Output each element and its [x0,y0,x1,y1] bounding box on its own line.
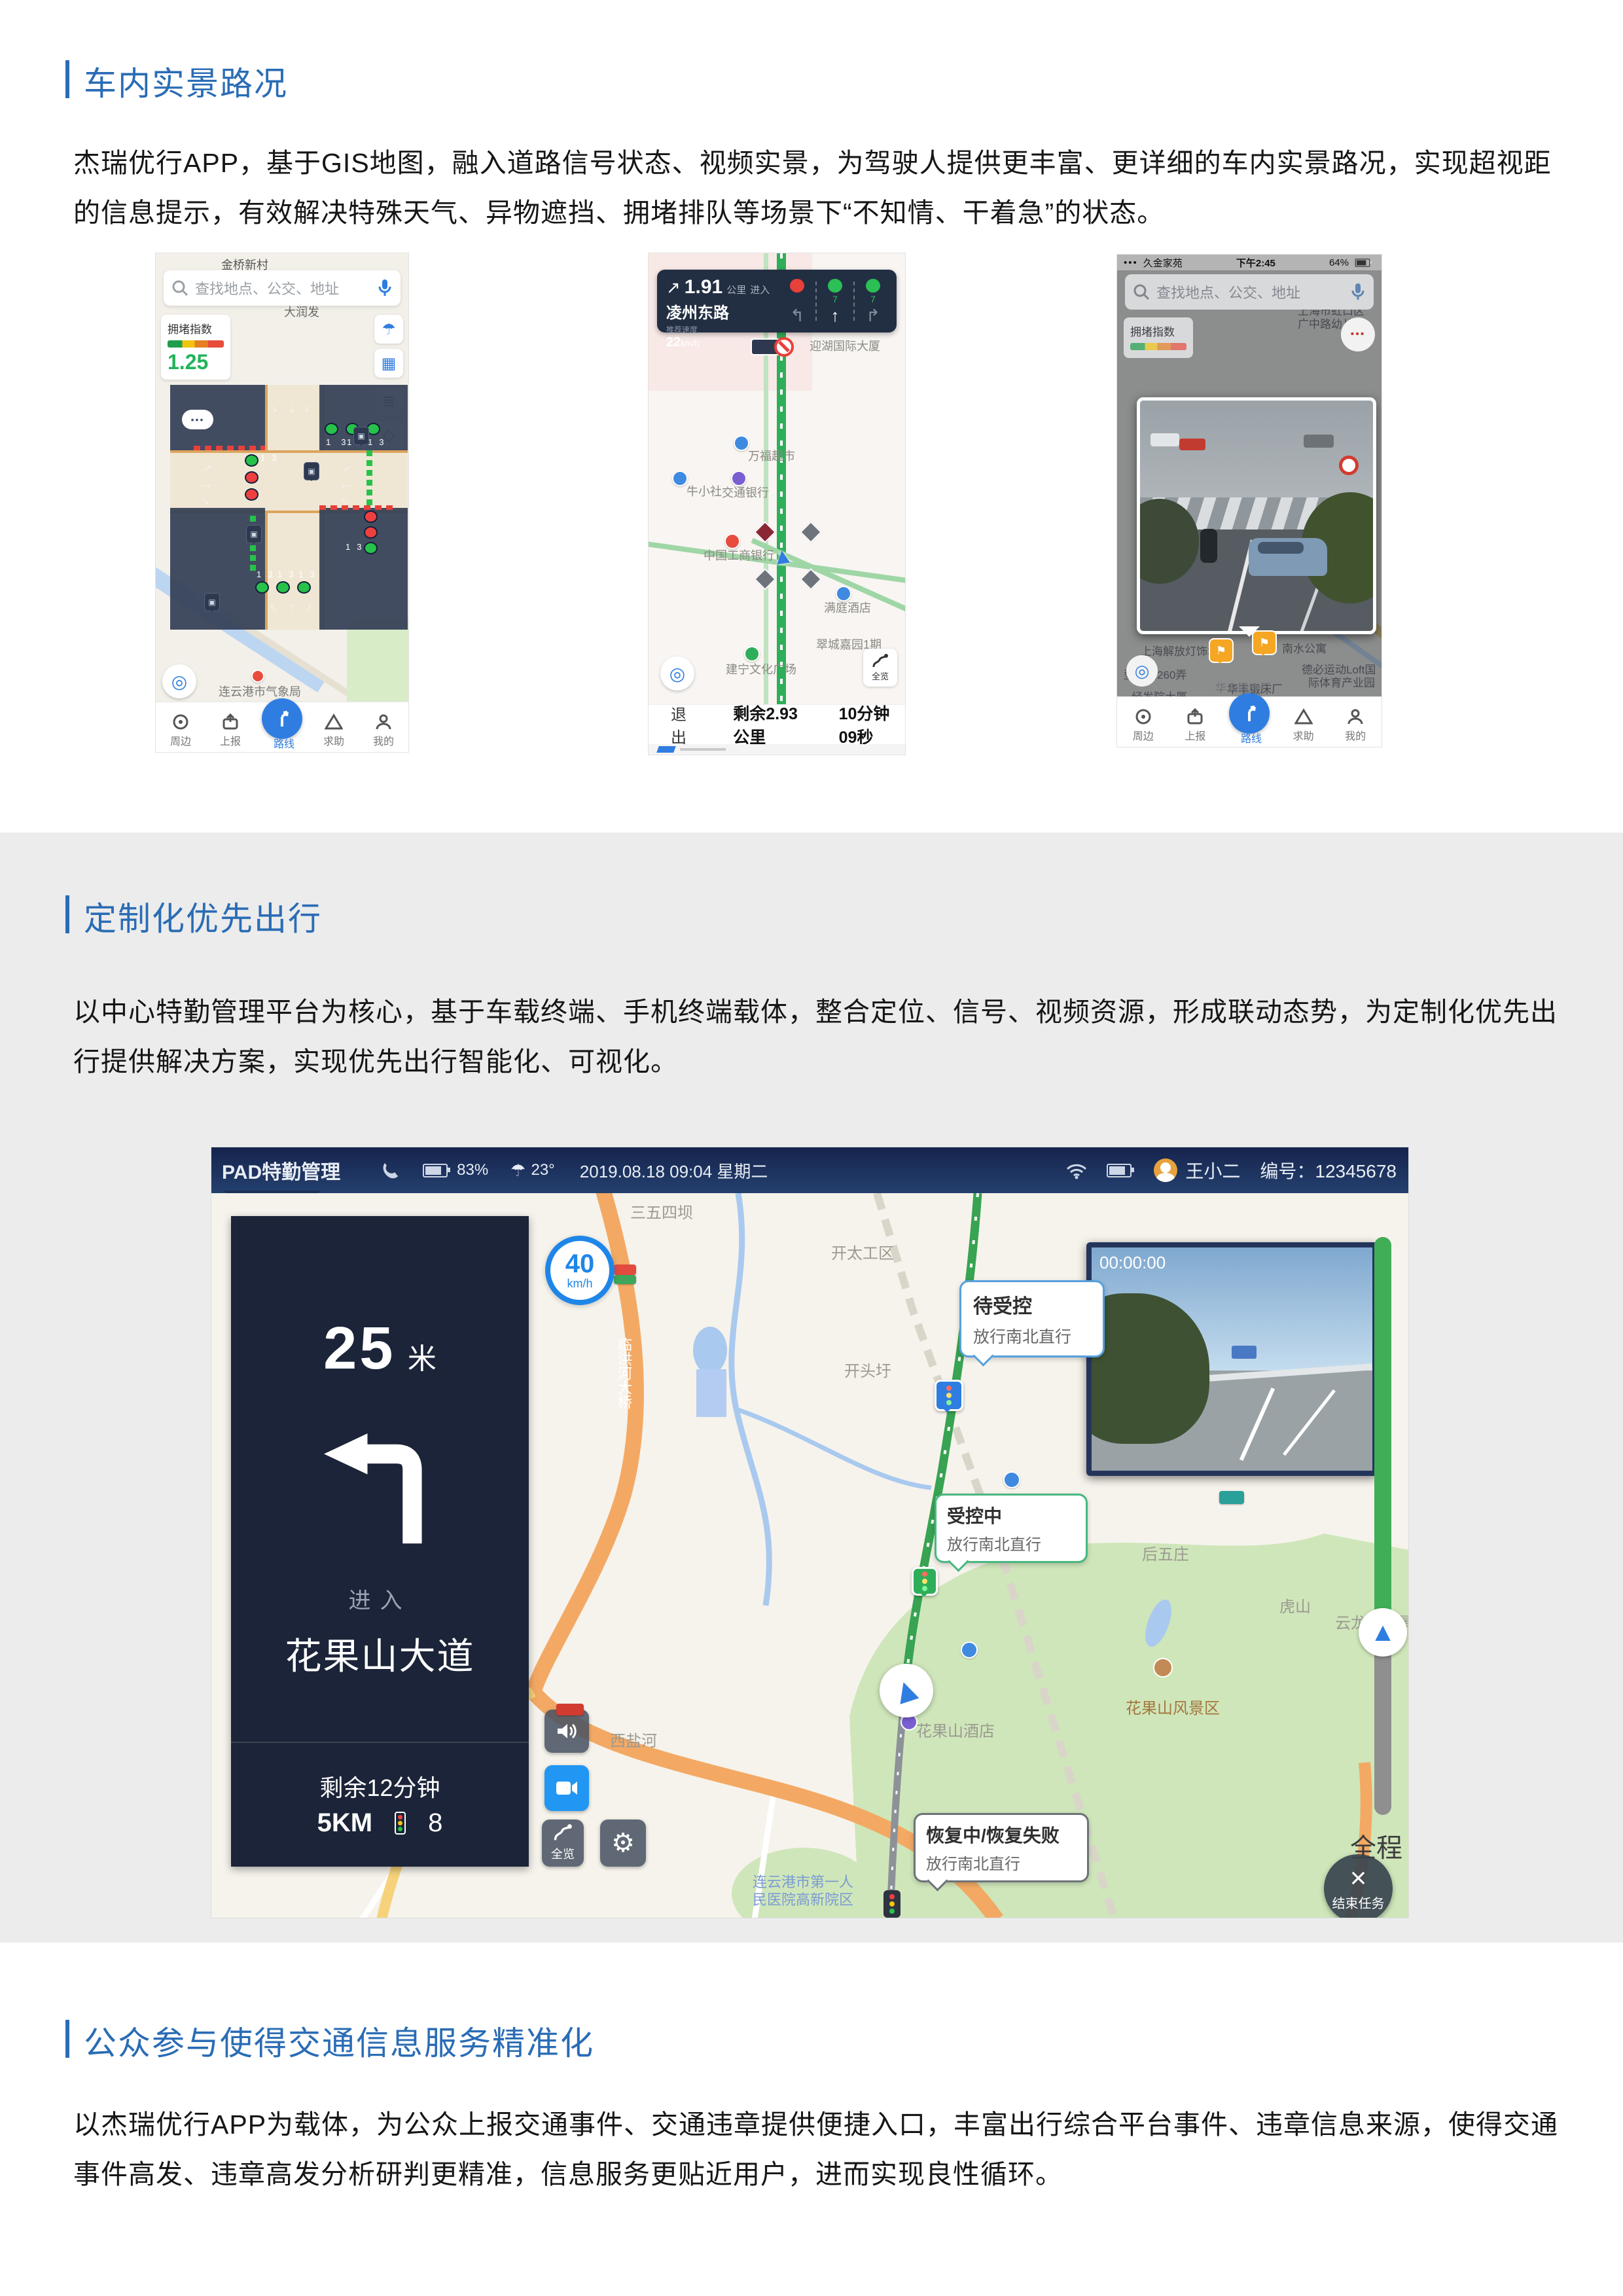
phone-screenshot-traffic-signal-map: 金桥新村 大润发 查找地点、公交、地址 拥堵指数 1.25 ☂ ▦ ≣ ◇ ⚠ … [155,253,409,753]
brochure-page: 车内实景路况 杰瑞优行APP，基于GIS地图，融入道路信号状态、视频实景，为驾驶… [0,0,1623,2296]
signal-red [245,488,259,501]
battery-percent: 83% [457,1161,488,1179]
wifi-ssid: 久金家苑 [1143,256,1183,270]
battery-icon-2 [1107,1164,1132,1177]
signal-green [276,581,290,594]
map-label: 西盐河 [610,1728,657,1751]
route-overview-icon [872,654,889,670]
bubble-subtitle: 放行南北直行 [947,1532,1075,1554]
avatar[interactable] [1154,1158,1177,1182]
photo-sign [1339,456,1359,475]
congestion-label: 拥堵指数 [168,320,224,336]
battery-percent: 64% [1329,257,1349,268]
event-flag-pin[interactable]: ⚑ [1252,630,1277,655]
route-button[interactable] [1229,693,1270,734]
signal-red [790,279,804,293]
congestion-index-card: 拥堵指数 [1124,317,1193,358]
panel-divider [231,1742,529,1743]
section2-title: 定制化优先出行 [84,893,322,940]
signal-dots: ••• [1124,257,1138,268]
route-button[interactable] [262,698,302,739]
wifi-icon [1065,1161,1088,1179]
camera-pin-icon[interactable]: ▣ [204,593,220,611]
map-label: 开头圩 [844,1358,891,1381]
countdown: 13 [277,569,300,579]
signal-pin-green[interactable] [912,1567,938,1596]
weather-layer-button[interactable]: ☂ [374,315,403,344]
battery-icon [1355,259,1370,267]
river-branch [736,1409,931,1488]
bubble-title: 受控中 [947,1502,1075,1528]
road-number-chip [614,1275,636,1284]
intersection-signal-overlay: 13 13 13 13 13 13 13 13 ↓ ↓ ↓ → → [170,385,408,630]
bottom-nav: 周边 上报 路线 求助 我的 [1117,696,1382,747]
nav-nearby[interactable]: 周边 [1122,708,1164,743]
search-placeholder: 查找地点、公交、地址 [195,278,377,298]
nearby-icon [171,713,190,731]
traffic-light-glyph [945,1386,953,1405]
section3-accent-bar [65,2020,69,2058]
end-task-button[interactable]: × 结束任务 [1324,1854,1393,1918]
nav-bottom-bar: 退出 剩余2.93公里 10分钟09秒 [649,704,905,744]
enter-label: 进入 [750,283,770,296]
nav-distance-unit: 米 [408,1343,437,1375]
signal-green [828,279,842,293]
pad-header: PAD特勤管理 83% ☂ 23° 2019.08.18 09:04 星期二 王… [211,1147,1408,1193]
remaining-km: 5KM [317,1808,372,1838]
map-label: 后五庄 [1142,1541,1189,1564]
nav-mine[interactable]: 我的 [363,713,404,748]
bubble-under-control: 受控中 放行南北直行 [935,1494,1088,1563]
speaker-button[interactable] [544,1710,589,1753]
camera-diamond-icon [754,568,776,590]
poi-icon [961,1641,978,1659]
section1-body-line2: 的信息提示，有效解决特殊天气、异物遮挡、拥堵排队等场景下“不知情、干着急”的状态… [73,190,1164,230]
traffic-light-count: 8 [428,1808,442,1838]
weather-station-icon [251,670,264,683]
section3-body-line1: 以杰瑞优行APP为载体，为公众上报交通事件、交通违章提供便捷入口，丰富出行综合平… [73,2102,1558,2142]
speed-unit: km/h [567,1277,592,1291]
poi-label: 建宁文化广场 [726,660,796,677]
person-icon [1346,708,1364,726]
locate-button[interactable]: ◎ [1126,655,1158,687]
position-arrow: ▲ [770,543,795,571]
microphone-icon[interactable] [377,279,393,297]
end-task-label: 结束任务 [1332,1893,1385,1912]
countdown: 13 [298,569,321,579]
pad-map[interactable]: 三五四坝 开太工区 开头圩 朝阳镇 西盐河 后五庄 虎山 花果山风景区 花果山酒… [211,1193,1408,1918]
section1-accent-bar [65,60,69,98]
video-road-sign [1232,1346,1257,1359]
section1-body-line1: 杰瑞优行APP，基于GIS地图，融入道路信号状态、视频实景，为驾驶人提供更丰富、… [73,141,1552,180]
nearby-icon [1134,708,1152,726]
signal-red [364,511,378,523]
nav-banner: ↗ 1.91 公里 进入 凌州东路 推荐速度 22km/h . ↰ 7 ↑ [657,270,897,332]
speech-bubble-icon[interactable]: ••• [1341,317,1375,351]
river [732,1193,770,1605]
user-name: 王小二 [1185,1157,1240,1183]
route-progress-bar [1374,1237,1391,1815]
nav-help[interactable]: 求助 [1283,708,1325,743]
poi-label: 迎湖国际大厦 [810,337,880,354]
bridge-label: 临洪河大桥 [613,1337,634,1409]
progress-arrow: ▲ [1370,1619,1396,1645]
target-road-name: 花果山大道 [231,1627,529,1680]
vehicle-position-marker: ▲ [880,1664,933,1717]
congestion-value: 1.25 [168,350,224,374]
poi-icon [734,435,749,451]
nav-route[interactable]: 路线 [1226,705,1272,743]
signal-column-mid: 7 ↑ [817,276,853,326]
search-icon [171,279,188,296]
signal-green [866,279,880,293]
speech-bubble-icon[interactable]: ••• [182,410,213,429]
exit-button[interactable]: 退出 [671,702,695,747]
layers-button[interactable]: ▦ [374,349,403,378]
section2-accent-bar [65,895,69,933]
poi-label: 万福超市 [748,447,795,464]
progress-position-indicator[interactable]: ▲ [1359,1608,1407,1657]
speed-value: 40 [565,1251,595,1277]
road-name: 凌州东路 [666,300,779,323]
bubble-subtitle: 放行南北直行 [973,1324,1091,1348]
battery-icon [423,1164,448,1177]
map-label: 花果山酒店 [916,1718,995,1741]
photo-van [1150,433,1179,446]
photo-car [1304,435,1334,448]
search-bar[interactable]: 查找地点、公交、地址 [164,270,401,306]
speed-limit-badge: 40 km/h [545,1236,615,1305]
turn-left-arrow-icon [306,1409,457,1550]
pad-app-title: PAD特勤管理 [222,1156,340,1185]
speed-label: 推荐速度 [666,324,779,335]
lane-arrow: ↑ [288,600,295,617]
signal-green [325,423,338,435]
red-queue-line [319,505,397,510]
search-bar[interactable]: 查找地点、公交、地址 [1125,274,1374,310]
remaining-row: 5KM 8 [231,1808,529,1838]
section1-title: 车内实景路况 [84,58,288,105]
person-icon [374,713,393,731]
photo-red-car [1179,439,1205,450]
signal-column-right: 7 ↱ [855,276,891,326]
map-label: 虎山 [1279,1594,1311,1617]
poi-icon [672,471,688,486]
nav-report[interactable]: 上报 [1174,708,1216,743]
help-icon [1294,708,1313,726]
help-icon [325,713,343,731]
countdown: 13 [257,569,279,579]
section3-body-line2: 事件高发、违章高发分析研判更精准，信息服务更贴近用户，进而实现良性循环。 [73,2152,1063,2191]
nav-help[interactable]: 求助 [313,713,355,748]
speed-value: 22 [666,335,681,350]
enter-label: 进入 [231,1583,529,1615]
phone-screenshot-navigation: ↗ 1.91 公里 进入 凌州东路 推荐速度 22km/h . ↰ 7 ↑ [648,253,906,755]
lake [693,1327,727,1374]
locate-button[interactable]: ◎ [162,664,196,698]
signal-column-left: . ↰ [779,276,815,326]
video-timestamp: 00:00:00 [1099,1253,1166,1273]
nav-route[interactable]: 路线 [259,710,305,748]
red-queue-line [194,446,265,450]
event-flag-pin[interactable]: ⚑ [1209,638,1234,663]
route-icon [272,709,292,728]
speaker-icon [556,1721,578,1741]
poi-label: 交通银行 [722,484,769,501]
bubble-recovering: 恢复中/恢复失败 放行南北直行 [914,1813,1089,1882]
video-button[interactable] [544,1765,589,1811]
distance-unit: 公里 [726,283,746,296]
map-label: 三五四坝 [630,1200,693,1223]
live-camera-popup[interactable] [1137,397,1376,634]
navigation-panel: 25 米 进入 花果山大道 剩余12分钟 5KM 8 [231,1216,529,1867]
scenic-poi-icon [1153,1658,1173,1677]
poi-icon [1003,1471,1020,1488]
nav-distance: 25 [323,1315,395,1382]
traffic-light-icon [395,1812,406,1835]
phone-handset-icon[interactable] [381,1160,401,1180]
countdown: 13 [346,542,368,552]
bubble-title: 恢复中/恢复失败 [926,1821,1077,1848]
map-label: 开太工区 [831,1240,894,1263]
green-queue-line [366,450,372,507]
camera-diamond-icon [800,521,822,543]
countdown: 13 [368,437,390,447]
locate-button[interactable]: ◎ [660,656,694,691]
poi-icon [744,646,760,662]
distance-value: 1.91 [685,276,722,298]
temperature: 23° [531,1161,554,1179]
attribution-strip [649,744,905,755]
status-time: 下午2:45 [1183,256,1329,270]
close-icon: × [1350,1865,1367,1892]
bubble-title: 待受控 [973,1290,1091,1319]
lane-arrow-right: ↱ [866,306,880,326]
route-overview-icon [553,1824,573,1842]
signal-green [255,581,269,594]
map-label-scenic: 花果山风景区 [1126,1695,1220,1718]
settings-button[interactable]: ⚙ [600,1820,646,1867]
turn-arrow-icon: ↗ [666,278,681,298]
signal-count: 7 [870,294,876,304]
weather-station-label: 连云港市气象局 [219,683,301,700]
overview-label: 全览 [551,1845,575,1862]
position-arrow: ▲ [885,1669,927,1712]
photo-scooter-rider [1200,529,1217,563]
remaining-distance: 剩余2.93公里 [733,701,808,748]
traffic-light-marker [883,1890,901,1918]
bottom-nav: 周边 上报 路线 求助 我的 [156,702,408,752]
lane-arrow: ↓ [288,399,295,416]
signal-red [364,526,378,539]
signal-pin-blue[interactable] [935,1380,963,1411]
gear-icon: ⚙ [611,1828,635,1858]
progress-done [1374,1237,1391,1612]
remaining-time: 10分钟09秒 [839,701,905,748]
no-entry-icon [774,337,794,357]
datetime: 2019.08.18 09:04 星期二 [580,1158,768,1183]
route-icon [1240,704,1259,723]
mute-badge [556,1704,584,1715]
weather-icon: ☂ [510,1160,526,1181]
nav-mine[interactable]: 我的 [1334,708,1376,743]
bubble-subtitle: 放行南北直行 [926,1851,1077,1874]
pad-special-duty-screenshot: PAD特勤管理 83% ☂ 23° 2019.08.18 09:04 星期二 王… [211,1147,1408,1918]
overview-button[interactable]: 全览 [863,649,897,687]
report-icon [221,713,240,731]
status-bar: ••• 久金家苑 下午2:45 64% [1117,255,1382,270]
poi-label: 满庭酒店 [824,599,871,616]
signal-red [245,471,259,484]
user-number: 编号：12345678 [1260,1157,1397,1183]
distance-row: 25 米 [231,1314,529,1383]
congestion-label: 拥堵指数 [1130,323,1186,339]
photo-buildings [1140,401,1373,497]
hospital-label-2: 民医院高新院区 [753,1888,853,1909]
water-building [696,1369,726,1417]
nav-banner-left: ↗ 1.91 公里 进入 凌州东路 推荐速度 22km/h [662,276,779,326]
remaining-time: 剩余12分钟 [231,1769,529,1803]
camera-pin-icon[interactable]: ▣ [353,427,369,445]
camera-pin-icon[interactable]: ▣ [246,525,262,543]
dashcam-video-popup[interactable]: 00:00:00 [1086,1242,1378,1476]
road-number-chip [1219,1491,1244,1504]
overview-button[interactable]: 全览 [542,1820,584,1867]
signal-green [297,581,311,594]
bubble-pending-control: 待受控 放行南北直行 [959,1280,1105,1357]
signal-count: 7 [832,294,838,304]
section2-body-line2: 行提供解决方案，实现优先出行智能化、可视化。 [73,1039,678,1079]
corner-block [319,508,408,630]
road-number-chip [614,1265,636,1275]
lane-arrow-left: ↰ [790,306,804,326]
video-camera-icon [555,1780,579,1797]
search-placeholder: 查找地点、公交、地址 [1156,281,1350,302]
map-label: 华丰锻床厂 [1215,679,1271,695]
photo-blue-car [1249,538,1327,576]
section2-body-line1: 以中心特勤管理平台为核心，基于车载终端、手机终端载体，整合定位、信号、视频资源，… [73,990,1558,1029]
nav-report[interactable]: 上报 [209,713,251,748]
signal-green [245,454,259,467]
camera-pin-icon[interactable]: ▣ [304,462,319,480]
congestion-index-card: 拥堵指数 1.25 [161,315,230,380]
poi-label: 牛小社 [687,482,722,499]
section3-title: 公众参与使得交通信息服务精准化 [84,2017,594,2064]
countdown: 13 [260,453,283,463]
congestion-gradient-bar [1130,343,1186,350]
phone-screenshot-video-popup: 上海市虹口区 广中路幼儿园 南水公寓 德必运动Loft国 际体育产业园 上海解放… [1116,254,1382,747]
report-icon [1186,708,1204,726]
lane-arrow-straight: ↑ [831,306,840,326]
speed-unit: km/h [681,338,699,348]
traffic-light-glyph [921,1571,929,1591]
congestion-gradient-bar [168,340,224,348]
microphone-icon[interactable] [1350,283,1366,301]
nav-nearby[interactable]: 周边 [160,713,202,748]
search-icon [1133,283,1150,300]
poi-label: 中国工商银行 [704,547,774,564]
